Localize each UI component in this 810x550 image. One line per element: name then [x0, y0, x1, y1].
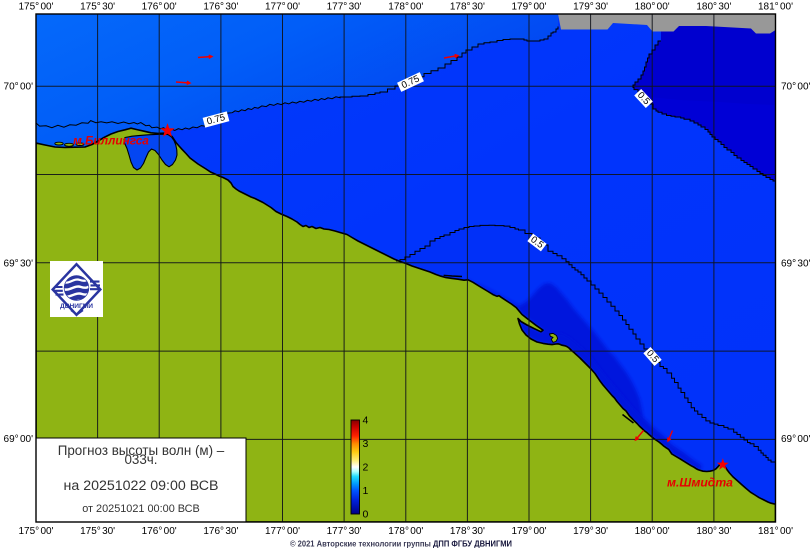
svg-text:181°00': 181°00': [758, 2, 793, 13]
svg-text:033ч.: 033ч.: [124, 452, 157, 467]
svg-text:176°00': 176°00': [142, 2, 177, 13]
svg-text:1: 1: [363, 485, 369, 497]
svg-text:176°30': 176°30': [203, 2, 238, 13]
svg-text:177°30': 177°30': [327, 526, 362, 537]
svg-text:177°00': 177°00': [265, 526, 300, 537]
svg-text:179°00': 179°00': [511, 2, 546, 13]
svg-text:177°00': 177°00': [265, 2, 300, 13]
svg-text:3: 3: [363, 438, 369, 450]
svg-text:179°30': 179°30': [573, 526, 608, 537]
svg-text:175°30': 175°30': [80, 526, 115, 537]
svg-text:69°30': 69°30': [781, 258, 810, 269]
svg-text:175°00': 175°00': [18, 526, 53, 537]
svg-text:176°00': 176°00': [142, 526, 177, 537]
svg-text:176°30': 176°30': [203, 526, 238, 537]
svg-text:ДВНИГМИ: ДВНИГМИ: [60, 303, 93, 310]
svg-text:69°00': 69°00': [4, 434, 34, 445]
svg-text:179°00': 179°00': [511, 526, 546, 537]
svg-text:© 2021 Авторские технологии гр: © 2021 Авторские технологии группы ДПП Ф…: [290, 539, 512, 549]
svg-text:180°30': 180°30': [696, 2, 731, 13]
svg-text:70°00': 70°00': [4, 82, 34, 93]
svg-text:2: 2: [363, 462, 369, 474]
svg-text:180°30': 180°30': [696, 526, 731, 537]
svg-text:181°00': 181°00': [758, 526, 793, 537]
svg-text:175°00': 175°00': [18, 2, 53, 13]
svg-text:на 20251022 09:00 ВСВ: на 20251022 09:00 ВСВ: [64, 478, 219, 494]
svg-text:0: 0: [363, 509, 369, 521]
svg-text:180°00': 180°00': [635, 2, 670, 13]
svg-text:м.Шмидта: м.Шмидта: [667, 476, 733, 490]
svg-text:4: 4: [363, 415, 369, 427]
svg-text:180°00': 180°00': [635, 526, 670, 537]
svg-text:179°30': 179°30': [573, 2, 608, 13]
svg-text:м.Биллингса: м.Биллингса: [73, 134, 149, 148]
svg-text:177°30': 177°30': [327, 2, 362, 13]
svg-text:178°30': 178°30': [450, 526, 485, 537]
svg-text:70°00': 70°00': [781, 82, 810, 93]
svg-text:178°00': 178°00': [388, 2, 423, 13]
svg-text:175°30': 175°30': [80, 2, 115, 13]
svg-text:69°00': 69°00': [781, 434, 810, 445]
svg-text:69°30': 69°30': [4, 258, 34, 269]
svg-text:от 20251021 00:00 ВСВ: от 20251021 00:00 ВСВ: [82, 503, 200, 515]
svg-text:178°30': 178°30': [450, 2, 485, 13]
svg-text:178°00': 178°00': [388, 526, 423, 537]
